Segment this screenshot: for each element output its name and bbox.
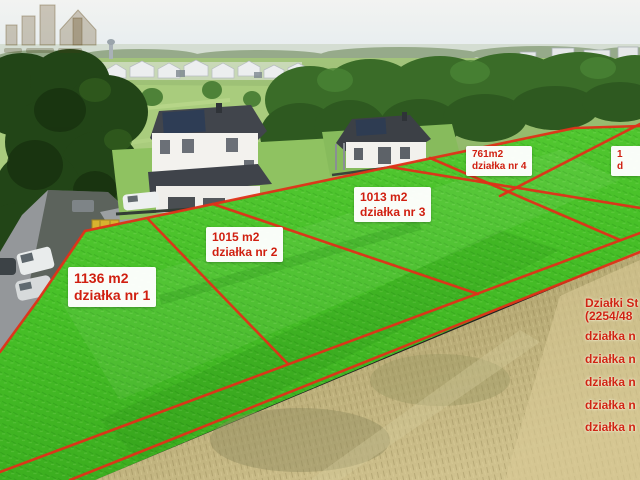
info-panel-item-5: działka n (585, 421, 636, 434)
plot-1-name: działka nr 1 (74, 287, 150, 304)
plot-3-area: 1013 m2 (360, 190, 425, 205)
info-panel-item-2: działka n (585, 353, 636, 366)
plot-5-area: 1 (617, 149, 640, 161)
plot-label-3: 1013 m2 działka nr 3 (354, 187, 431, 222)
info-panel-item-4: działka n (585, 399, 636, 412)
info-panel-title-line2: (2254/48 (585, 310, 638, 323)
trailer (72, 200, 94, 212)
info-panel-title: Działki St (2254/48 (585, 297, 638, 323)
plot-label-4: 761m2 działka nr 4 (466, 146, 532, 176)
plot-label-2: 1015 m2 działka nr 2 (206, 227, 283, 262)
car-dark (0, 258, 16, 275)
plot-label-1: 1136 m2 działka nr 1 (68, 267, 156, 307)
plot-4-area: 761m2 (472, 149, 526, 161)
plot-4-name: działka nr 4 (472, 161, 526, 173)
photo-scene (0, 0, 640, 480)
plot-2-area: 1015 m2 (212, 230, 277, 245)
plot-label-5-cut: 1 d (611, 146, 640, 176)
aerial-plots-photo: 1136 m2 działka nr 1 1015 m2 działka nr … (0, 0, 640, 480)
plot-5-name: d (617, 161, 640, 173)
info-panel-item-1: działka n (585, 330, 636, 343)
plot-2-name: działka nr 2 (212, 245, 277, 260)
plot-1-area: 1136 m2 (74, 270, 150, 287)
info-panel-item-3: działka n (585, 376, 636, 389)
plot-3-name: działka nr 3 (360, 205, 425, 220)
